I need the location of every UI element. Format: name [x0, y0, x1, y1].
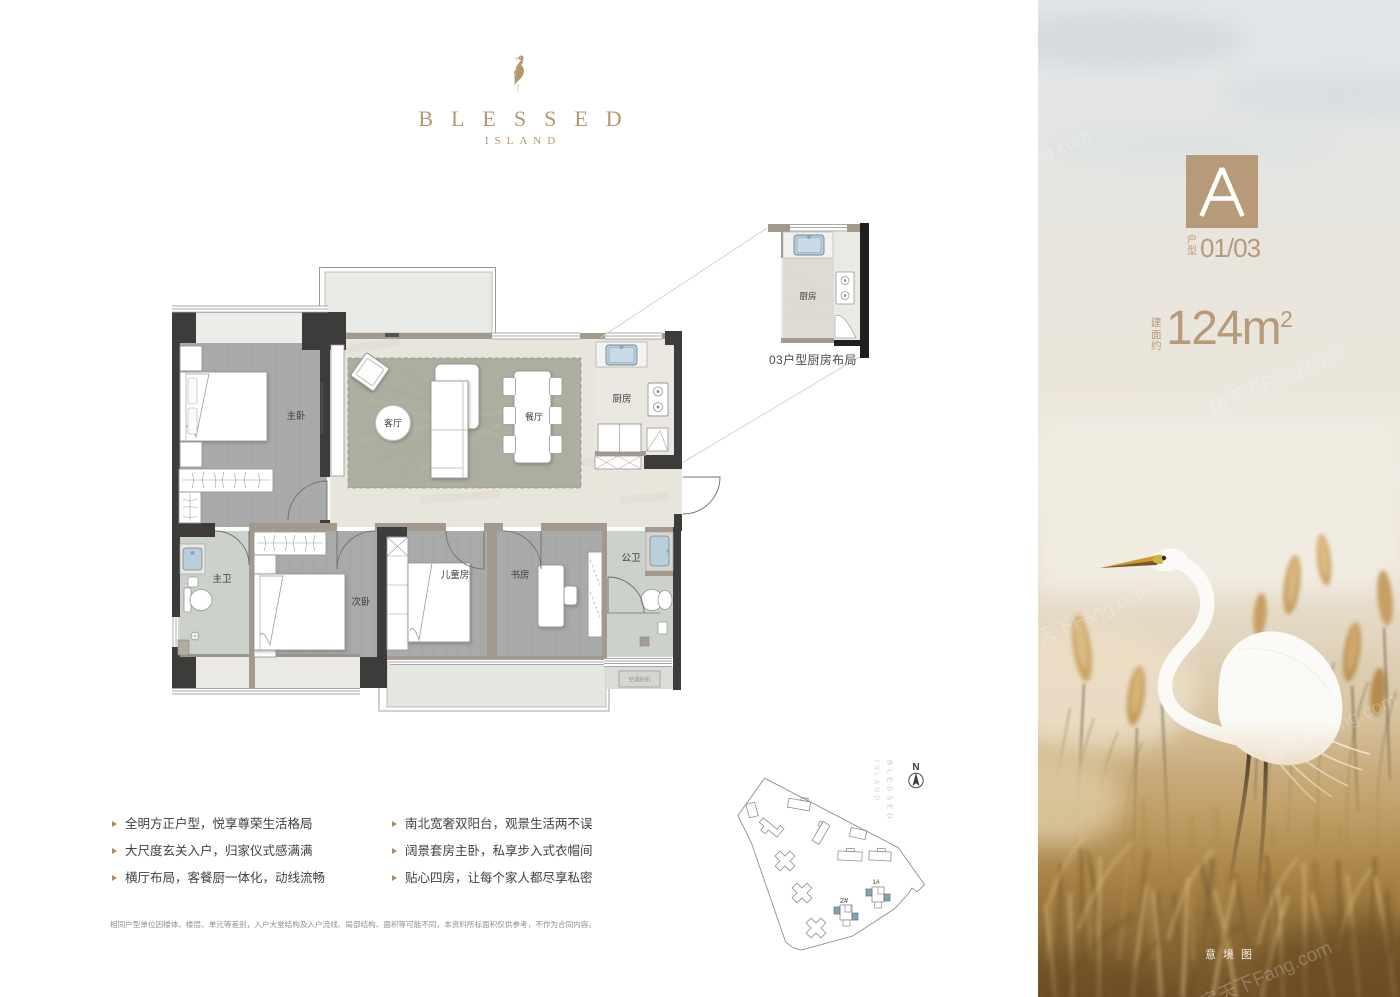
svg-text:主卫: 主卫: [212, 573, 232, 585]
svg-text:儿童房: 儿童房: [441, 569, 470, 581]
svg-text:2#: 2#: [840, 896, 849, 905]
svg-text:N: N: [912, 762, 919, 773]
svg-text:空调外机: 空调外机: [628, 676, 651, 684]
svg-text:书房: 书房: [510, 569, 529, 581]
svg-text:ISLAND: ISLAND: [873, 760, 880, 803]
svg-text:餐厅: 餐厅: [525, 411, 543, 422]
svg-text:1#: 1#: [872, 879, 880, 886]
svg-text:厨房: 厨房: [612, 393, 631, 405]
svg-text:厨房: 厨房: [799, 291, 816, 301]
svg-text:BLESSED: BLESSED: [886, 760, 895, 823]
svg-text:次卧: 次卧: [351, 596, 371, 608]
svg-text:客厅: 客厅: [384, 418, 402, 429]
svg-text:公卫: 公卫: [621, 553, 641, 564]
svg-text:主卧: 主卧: [286, 410, 306, 422]
